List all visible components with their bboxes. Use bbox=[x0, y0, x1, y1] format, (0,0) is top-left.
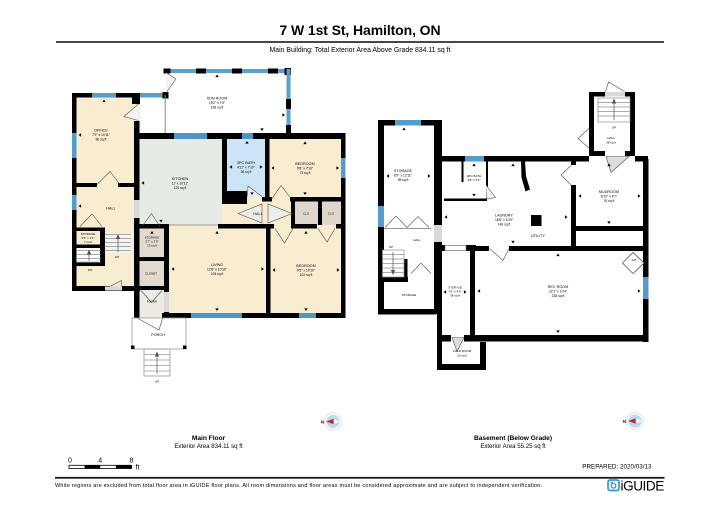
svg-text:UP: UP bbox=[115, 255, 119, 259]
svg-text:8'10" x 8'7": 8'10" x 8'7" bbox=[601, 195, 618, 199]
svg-text:COLD ROOM: COLD ROOM bbox=[453, 349, 472, 353]
svg-text:F/P: F/P bbox=[632, 258, 637, 262]
svg-text:9'8" x 7'10": 9'8" x 7'10" bbox=[297, 167, 314, 171]
svg-text:UP: UP bbox=[155, 380, 159, 384]
svg-text:76 sq ft: 76 sq ft bbox=[604, 199, 615, 203]
svg-text:8'9" x 12'11": 8'9" x 12'11" bbox=[394, 174, 413, 178]
svg-text:BEDROOM: BEDROOM bbox=[295, 162, 314, 166]
svg-text:KITCHEN: KITCHEN bbox=[172, 177, 189, 181]
svg-text:Main Floor: Main Floor bbox=[192, 435, 226, 442]
svg-text:38 sq ft: 38 sq ft bbox=[450, 294, 460, 298]
svg-text:7'9" x 10'11": 7'9" x 10'11" bbox=[92, 133, 111, 137]
svg-text:120 sq ft: 120 sq ft bbox=[174, 186, 187, 190]
svg-text:Exterior Area 834.11 sq ft: Exterior Area 834.11 sq ft bbox=[174, 443, 243, 450]
svg-text:4'11" x 7'10": 4'11" x 7'10" bbox=[237, 166, 256, 170]
svg-text:HALL: HALL bbox=[413, 238, 421, 242]
svg-text:UTILITY: UTILITY bbox=[531, 234, 546, 238]
svg-text:HALL: HALL bbox=[607, 136, 615, 140]
svg-text:9'5" x 10'10": 9'5" x 10'10" bbox=[297, 269, 316, 273]
svg-text:Basement (Below Grade): Basement (Below Grade) bbox=[474, 435, 552, 442]
svg-text:19'2" x 7'9": 19'2" x 7'9" bbox=[209, 101, 226, 105]
svg-text:LIVING: LIVING bbox=[211, 263, 223, 267]
svg-text:SUN ROOM: SUN ROOM bbox=[207, 97, 228, 101]
svg-text:108 sq ft: 108 sq ft bbox=[211, 272, 224, 276]
svg-text:HALL: HALL bbox=[253, 212, 262, 216]
svg-text:148 sq ft: 148 sq ft bbox=[498, 223, 511, 227]
svg-text:White regions are excluded fro: White regions are excluded from total fl… bbox=[55, 483, 542, 489]
svg-text:LAUNDRY: LAUNDRY bbox=[495, 214, 513, 218]
svg-text:PREPARED: 2020/03/13: PREPARED: 2020/03/13 bbox=[582, 464, 652, 471]
svg-text:102 sq ft: 102 sq ft bbox=[300, 273, 313, 277]
svg-text:BEDROOM: BEDROOM bbox=[296, 264, 315, 268]
svg-text:73 sq ft: 73 sq ft bbox=[300, 171, 311, 175]
svg-text:95 sq ft: 95 sq ft bbox=[398, 178, 409, 182]
svg-text:PORCH: PORCH bbox=[151, 333, 165, 337]
svg-text:UP: UP bbox=[612, 126, 616, 130]
svg-text:N: N bbox=[623, 419, 626, 424]
svg-text:CLOSET: CLOSET bbox=[145, 272, 157, 276]
svg-text:CLO: CLO bbox=[328, 212, 335, 216]
svg-text:REC ROOM: REC ROOM bbox=[548, 285, 569, 289]
svg-text:11' x 10'11": 11' x 10'11" bbox=[172, 182, 189, 186]
svg-text:OFFICE: OFFICE bbox=[94, 129, 108, 133]
svg-text:N: N bbox=[321, 419, 324, 424]
svg-text:3'9" x 5'1": 3'9" x 5'1" bbox=[467, 178, 480, 182]
svg-text:MUDROOM: MUDROOM bbox=[599, 190, 619, 194]
svg-text:HALL: HALL bbox=[106, 207, 115, 211]
svg-text:CLO: CLO bbox=[303, 212, 310, 216]
svg-text:DN: DN bbox=[88, 268, 92, 272]
svg-text:STORAGE: STORAGE bbox=[394, 169, 413, 173]
svg-text:8: 8 bbox=[130, 458, 134, 465]
svg-text:UP: UP bbox=[389, 245, 393, 249]
svg-text:38 sq ft: 38 sq ft bbox=[606, 141, 616, 145]
svg-text:16 sq ft: 16 sq ft bbox=[457, 354, 467, 358]
svg-text:18'8" x 10'9": 18'8" x 10'9" bbox=[495, 218, 514, 222]
svg-text:0: 0 bbox=[68, 458, 72, 465]
svg-text:ft: ft bbox=[136, 465, 140, 472]
svg-text:3PC BATH: 3PC BATH bbox=[237, 161, 255, 165]
svg-text:228 sq ft: 228 sq ft bbox=[552, 294, 565, 298]
svg-text:138 sq ft: 138 sq ft bbox=[211, 106, 224, 110]
svg-text:STORAGE: STORAGE bbox=[402, 293, 417, 297]
svg-text:4: 4 bbox=[98, 458, 102, 465]
svg-text:12'6" x 10'10": 12'6" x 10'10" bbox=[207, 268, 228, 272]
svg-text:13 sq ft: 13 sq ft bbox=[147, 244, 157, 248]
svg-text:36 sq ft: 36 sq ft bbox=[241, 170, 252, 174]
svg-text:22'1" x 10'4": 22'1" x 10'4" bbox=[549, 290, 568, 294]
svg-text:Exterior Area 55.25 sq ft: Exterior Area 55.25 sq ft bbox=[480, 443, 546, 450]
svg-text:Main Building: Total Exterior: Main Building: Total Exterior Area Above… bbox=[270, 47, 451, 54]
svg-text:80 sq ft: 80 sq ft bbox=[96, 138, 107, 142]
svg-text:7 W 1st St, Hamilton, ON: 7 W 1st St, Hamilton, ON bbox=[280, 22, 441, 38]
svg-text:7 sq ft: 7 sq ft bbox=[84, 240, 92, 244]
svg-text:FOYER: FOYER bbox=[147, 300, 158, 304]
svg-text:iGUIDE: iGUIDE bbox=[621, 479, 665, 494]
